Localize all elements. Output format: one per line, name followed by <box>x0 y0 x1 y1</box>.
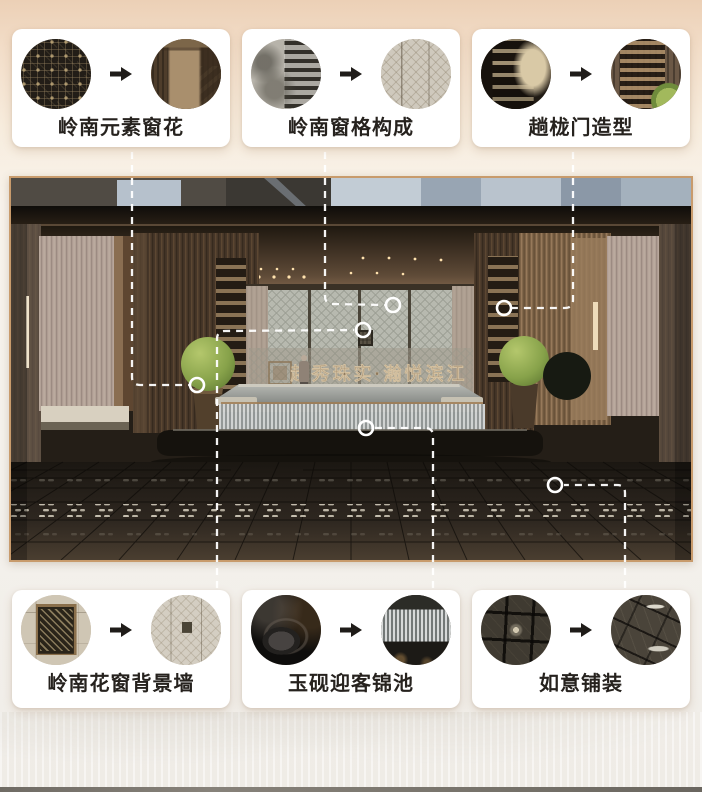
arrow-right-icon <box>321 66 381 82</box>
floor-reflection <box>0 712 702 787</box>
roof-fascia <box>11 206 691 226</box>
arrow-right-icon <box>551 622 611 638</box>
foreground-paving <box>11 462 691 560</box>
card-label: 趟栊门造型 <box>529 118 634 138</box>
brand-calligraphy: 越秀珠实·瀚悦滨江 <box>269 362 468 384</box>
card-label: 岭南花窗背景墙 <box>48 674 195 694</box>
dark-shrub <box>543 352 591 400</box>
entrance-render-scene: 越秀珠实·瀚悦滨江 <box>11 178 691 560</box>
card-label: 如意铺装 <box>539 674 623 694</box>
arrow-right-icon <box>91 66 151 82</box>
before-photo-old-windows <box>251 39 321 109</box>
callout-card-lingnan-window-flower: 岭南元素窗花 <box>12 29 230 147</box>
arrow-right-icon <box>321 622 381 638</box>
card-label: 岭南窗格构成 <box>288 118 414 138</box>
before-photo-lingnan-lattice <box>21 39 91 109</box>
card-label: 岭南元素窗花 <box>58 118 184 138</box>
bottom-edge-bar <box>0 787 702 792</box>
central-entrance-bay: 越秀珠实·瀚悦滨江 <box>246 284 474 398</box>
before-photo-flower-window <box>21 595 91 665</box>
callout-card-inkstone-pool: 玉砚迎客锦池 <box>242 590 460 708</box>
after-photo-ruyi-paving <box>611 595 681 665</box>
after-photo-water-curtain-pool <box>381 595 451 665</box>
before-photo-inkstone <box>251 595 321 665</box>
before-photo-grid-paving <box>481 595 551 665</box>
wall-flower-window-emblem <box>358 330 373 346</box>
card-label: 玉砚迎客锦池 <box>288 674 414 694</box>
after-photo-diamond-lattice-wall <box>381 39 451 109</box>
svg-text:越秀珠实·瀚悦滨江: 越秀珠实·瀚悦滨江 <box>290 363 468 384</box>
arrow-right-icon <box>551 66 611 82</box>
callout-card-flower-window-wall: 岭南花窗背景墙 <box>12 590 230 708</box>
entrance-render-image: 越秀珠实·瀚悦滨江 <box>9 176 693 562</box>
arrow-right-icon <box>91 622 151 638</box>
callout-card-ruyi-paving: 如意铺装 <box>472 590 690 708</box>
callout-card-tanglong-door: 趟栊门造型 <box>472 29 690 147</box>
after-photo-tanglong-screen <box>611 39 681 109</box>
after-photo-bronze-column <box>151 39 221 109</box>
callout-card-lattice-composition: 岭南窗格构成 <box>242 29 460 147</box>
dotted-paving-band <box>11 504 691 517</box>
led-light-strip-right <box>593 302 598 350</box>
before-photo-tanglong-door <box>481 39 551 109</box>
glass-reflection-strip <box>11 178 691 208</box>
after-photo-feature-wall <box>151 595 221 665</box>
